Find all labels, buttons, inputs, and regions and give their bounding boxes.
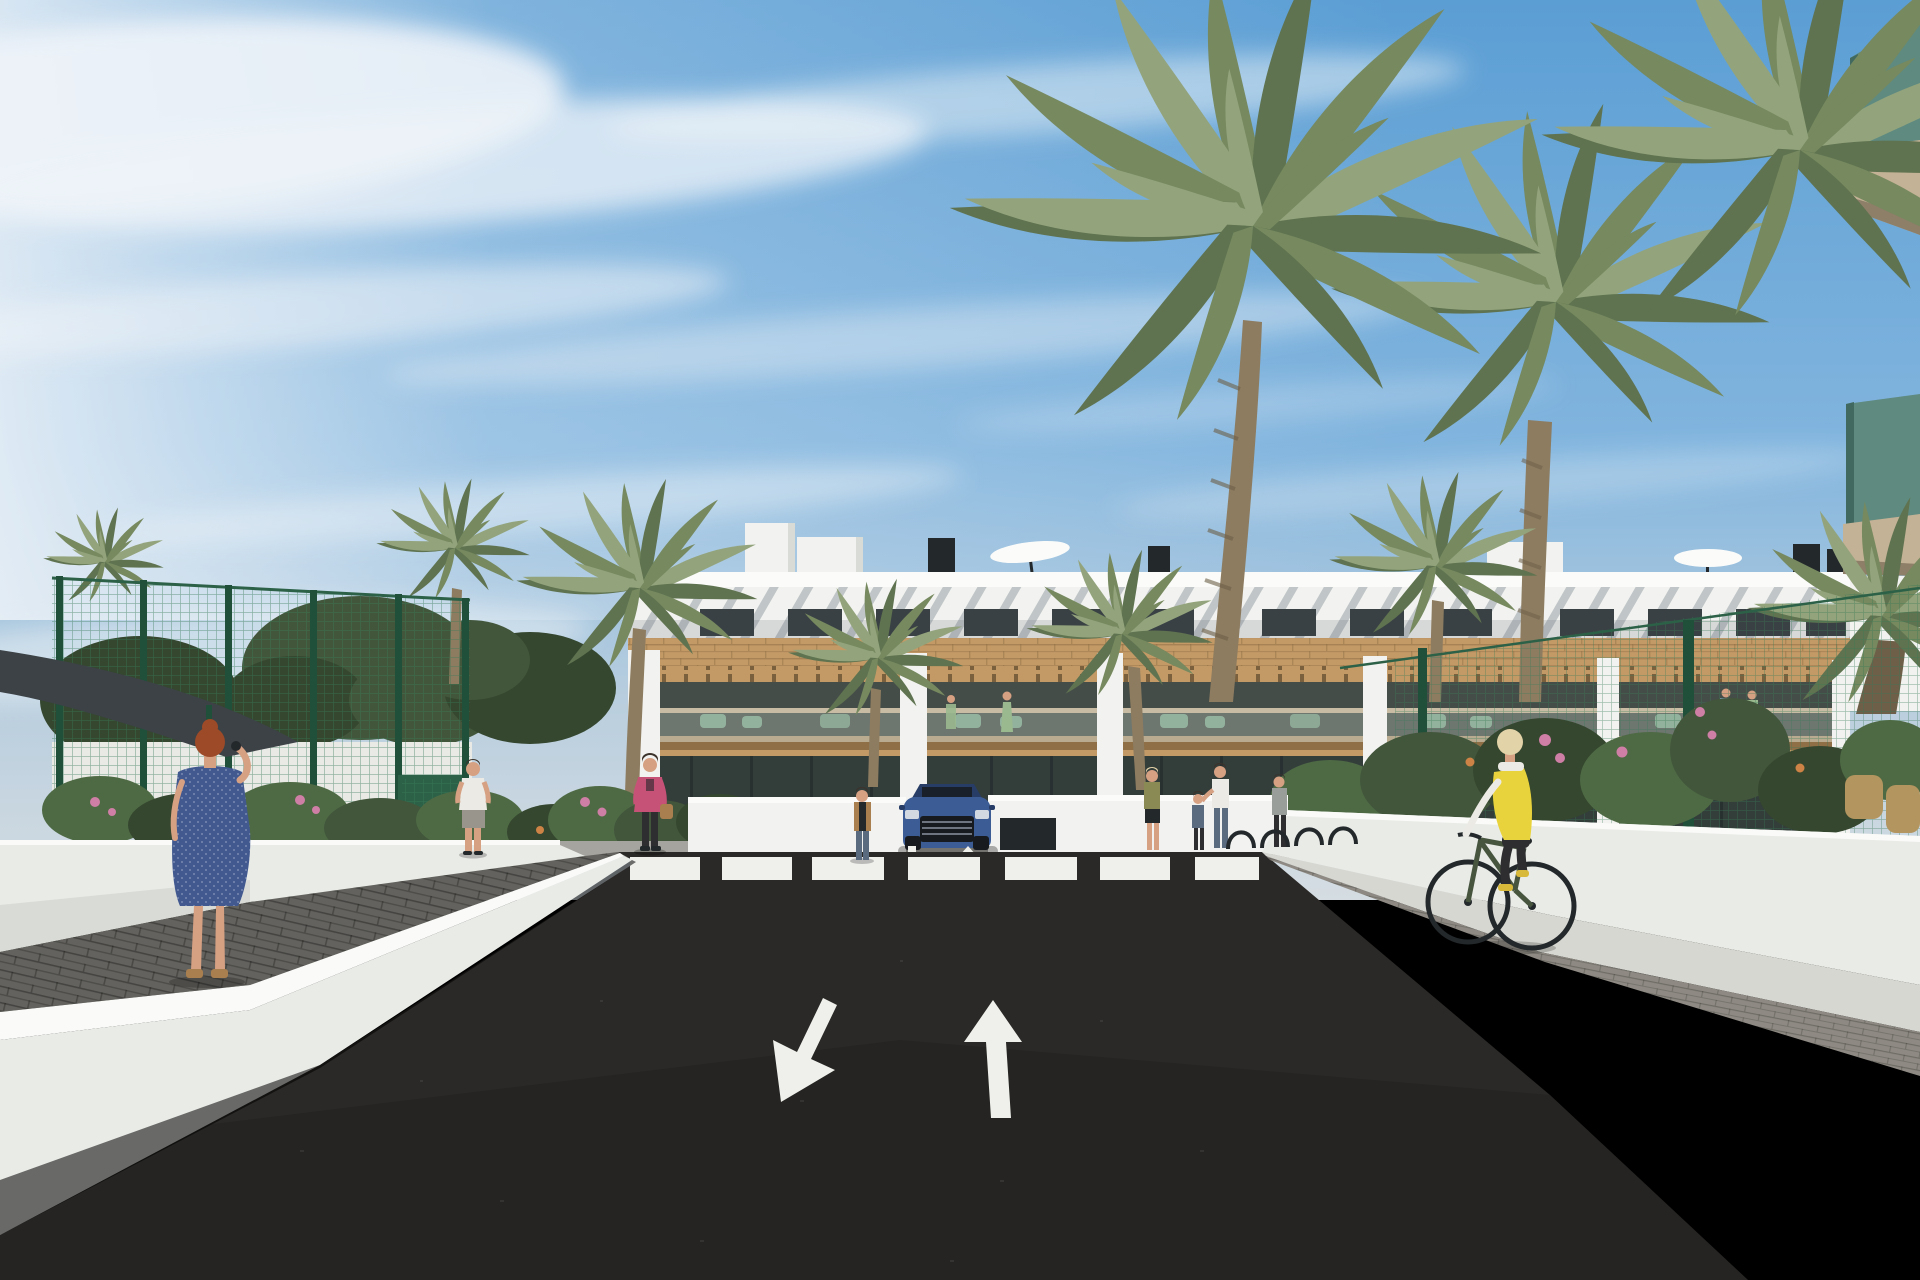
phone xyxy=(231,741,241,751)
cyclist-leg xyxy=(1505,848,1508,886)
blonde-hair xyxy=(1497,729,1523,755)
balcony-person xyxy=(946,695,956,729)
crosswalk xyxy=(630,857,1259,880)
car-headlight xyxy=(975,810,989,819)
rattan-chair xyxy=(1845,775,1883,819)
chimney xyxy=(928,538,955,572)
car-windshield xyxy=(922,787,972,797)
car-headlight xyxy=(905,810,919,819)
garage-opening xyxy=(1000,818,1056,850)
car-grille xyxy=(920,816,974,842)
planter-wall-left xyxy=(688,800,906,852)
balcony-person xyxy=(1001,692,1013,733)
rattan-chair xyxy=(1886,785,1920,833)
roof-tower xyxy=(745,523,795,578)
handbag xyxy=(660,804,673,819)
scene-architectural-render xyxy=(0,0,1920,1280)
chimney xyxy=(1148,546,1170,572)
